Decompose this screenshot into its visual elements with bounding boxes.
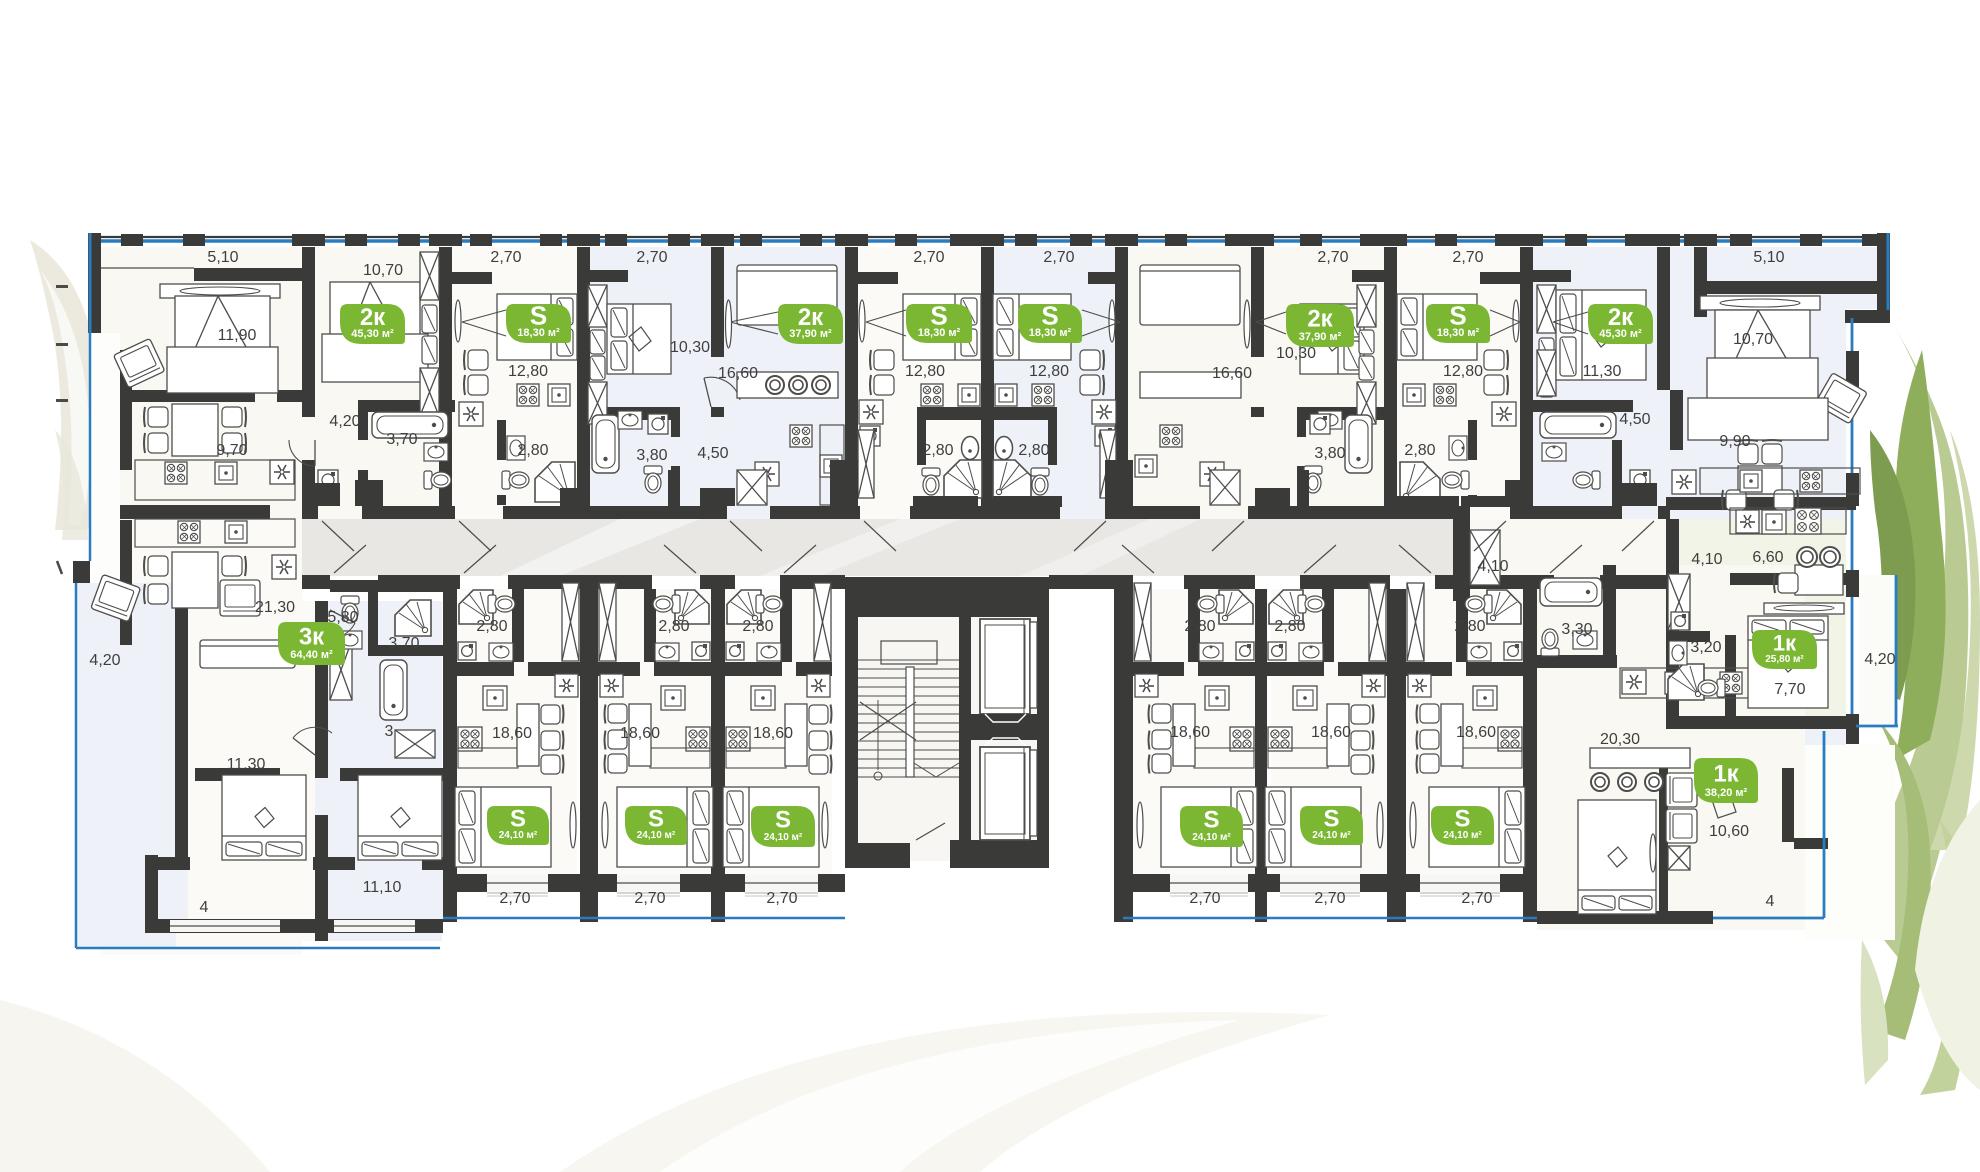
svg-text:4,20: 4,20 xyxy=(1864,651,1895,668)
svg-text:S: S xyxy=(510,805,526,832)
svg-text:3,20: 3,20 xyxy=(1690,639,1721,656)
svg-text:2,70: 2,70 xyxy=(1317,249,1348,266)
svg-text:2,70: 2,70 xyxy=(634,890,665,907)
svg-text:7,70: 7,70 xyxy=(1774,681,1805,698)
svg-text:2,70: 2,70 xyxy=(1043,249,1074,266)
svg-text:5,80: 5,80 xyxy=(327,609,358,626)
svg-text:4,50: 4,50 xyxy=(697,445,728,462)
svg-text:20,30: 20,30 xyxy=(1600,731,1640,748)
svg-text:5,10: 5,10 xyxy=(207,249,238,266)
svg-text:4: 4 xyxy=(1766,893,1775,910)
svg-text:9,90: 9,90 xyxy=(1719,433,1750,450)
svg-text:10,30: 10,30 xyxy=(670,339,710,356)
svg-text:2,70: 2,70 xyxy=(1452,249,1483,266)
svg-text:2,80: 2,80 xyxy=(658,618,689,635)
svg-text:18,60: 18,60 xyxy=(753,725,793,742)
svg-text:S: S xyxy=(1323,805,1339,832)
svg-text:2,80: 2,80 xyxy=(922,442,953,459)
svg-text:4,10: 4,10 xyxy=(1477,558,1508,575)
svg-text:24,10 м²: 24,10 м² xyxy=(637,830,676,841)
svg-text:45,30 м²: 45,30 м² xyxy=(1599,328,1642,340)
svg-text:18,30 м²: 18,30 м² xyxy=(1437,327,1480,339)
svg-text:2,70: 2,70 xyxy=(490,249,521,266)
svg-text:24,10 м²: 24,10 м² xyxy=(1312,830,1351,841)
svg-text:21,30: 21,30 xyxy=(255,599,295,616)
svg-text:2,70: 2,70 xyxy=(1461,890,1492,907)
svg-text:24,10 м²: 24,10 м² xyxy=(499,830,538,841)
svg-text:45,30 м²: 45,30 м² xyxy=(351,328,394,340)
svg-text:2,70: 2,70 xyxy=(636,249,667,266)
svg-text:4,20: 4,20 xyxy=(89,652,120,669)
svg-text:2,70: 2,70 xyxy=(913,249,944,266)
svg-text:3,80: 3,80 xyxy=(636,447,667,464)
svg-text:2,70: 2,70 xyxy=(499,890,530,907)
svg-text:10,30: 10,30 xyxy=(1276,345,1316,362)
svg-text:S: S xyxy=(1041,300,1058,330)
svg-text:18,60: 18,60 xyxy=(1311,724,1351,741)
svg-text:2,80: 2,80 xyxy=(476,618,507,635)
svg-text:2,70: 2,70 xyxy=(1189,890,1220,907)
svg-text:16,60: 16,60 xyxy=(718,365,758,382)
svg-text:2,70: 2,70 xyxy=(1314,890,1345,907)
svg-text:6,60: 6,60 xyxy=(1752,549,1783,566)
svg-text:10,70: 10,70 xyxy=(1733,331,1773,348)
svg-text:10,60: 10,60 xyxy=(1709,823,1749,840)
svg-text:2,70: 2,70 xyxy=(766,890,797,907)
svg-text:18,60: 18,60 xyxy=(1170,724,1210,741)
svg-text:18,60: 18,60 xyxy=(492,725,532,742)
svg-text:25,80 м²: 25,80 м² xyxy=(1765,654,1804,665)
svg-text:12,80: 12,80 xyxy=(905,363,945,380)
svg-text:3,70: 3,70 xyxy=(388,635,419,652)
svg-text:4,20: 4,20 xyxy=(329,413,360,430)
svg-text:24,10 м²: 24,10 м² xyxy=(764,832,803,843)
svg-text:2к: 2к xyxy=(360,304,386,331)
svg-text:11,30: 11,30 xyxy=(1583,363,1622,380)
svg-text:2к: 2к xyxy=(1608,304,1634,331)
svg-text:11,90: 11,90 xyxy=(218,327,257,344)
svg-text:1к: 1к xyxy=(1773,630,1797,655)
svg-text:3,80: 3,80 xyxy=(1314,445,1345,462)
svg-text:64,40 м²: 64,40 м² xyxy=(290,649,333,661)
svg-text:3к: 3к xyxy=(299,623,325,650)
svg-text:3,30: 3,30 xyxy=(1561,621,1592,638)
svg-text:2,80: 2,80 xyxy=(1274,618,1305,635)
svg-text:S: S xyxy=(930,300,947,330)
svg-text:3,70: 3,70 xyxy=(386,431,417,448)
svg-text:2к: 2к xyxy=(798,304,824,331)
svg-text:9,70: 9,70 xyxy=(216,442,247,459)
svg-text:3: 3 xyxy=(385,723,394,740)
svg-text:5,10: 5,10 xyxy=(1753,249,1784,266)
svg-text:2,80: 2,80 xyxy=(1018,442,1049,459)
svg-text:18,30 м²: 18,30 м² xyxy=(1029,327,1072,339)
svg-text:2к: 2к xyxy=(1307,305,1333,332)
svg-text:18,30 м²: 18,30 м² xyxy=(918,327,961,339)
svg-text:S: S xyxy=(1449,300,1466,330)
svg-text:12,80: 12,80 xyxy=(508,363,548,380)
svg-text:37,90 м²: 37,90 м² xyxy=(789,328,832,340)
svg-text:12,80: 12,80 xyxy=(1029,363,1069,380)
svg-text:16,60: 16,60 xyxy=(1212,365,1252,382)
svg-text:12,80: 12,80 xyxy=(1443,363,1483,380)
svg-text:37,90 м²: 37,90 м² xyxy=(1299,331,1342,343)
svg-text:S: S xyxy=(1454,805,1470,832)
svg-text:11,10: 11,10 xyxy=(363,879,402,896)
svg-text:10,70: 10,70 xyxy=(363,262,403,279)
svg-text:18,60: 18,60 xyxy=(620,725,660,742)
svg-text:S: S xyxy=(530,300,547,330)
svg-text:4: 4 xyxy=(200,899,209,916)
svg-text:11,30: 11,30 xyxy=(227,756,266,773)
svg-text:S: S xyxy=(1203,806,1219,833)
svg-text:4,50: 4,50 xyxy=(1619,411,1650,428)
svg-text:2,80: 2,80 xyxy=(1454,618,1485,635)
svg-text:2,80: 2,80 xyxy=(1184,618,1215,635)
svg-text:2,80: 2,80 xyxy=(1404,442,1435,459)
svg-text:24,10 м²: 24,10 м² xyxy=(1192,832,1231,843)
svg-text:1к: 1к xyxy=(1713,760,1739,787)
svg-text:2,80: 2,80 xyxy=(517,442,548,459)
svg-text:18,60: 18,60 xyxy=(1456,724,1496,741)
svg-text:38,20 м²: 38,20 м² xyxy=(1705,787,1748,799)
svg-text:18,30 м²: 18,30 м² xyxy=(517,327,560,339)
svg-text:S: S xyxy=(775,806,791,833)
svg-text:S: S xyxy=(648,805,664,832)
svg-text:4,10: 4,10 xyxy=(1691,551,1722,568)
svg-text:24,10 м²: 24,10 м² xyxy=(1443,830,1482,841)
svg-text:2,80: 2,80 xyxy=(742,618,773,635)
